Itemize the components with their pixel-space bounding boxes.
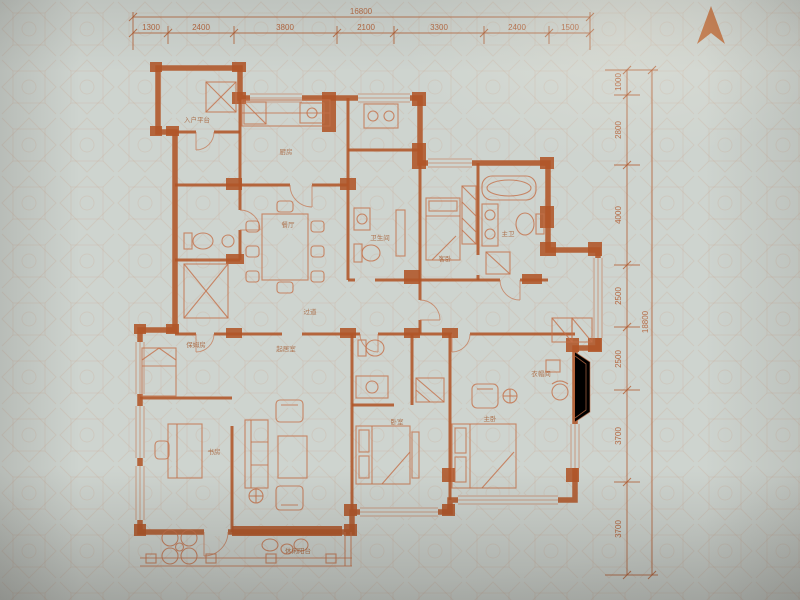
dim-seg: 1300 (142, 23, 160, 32)
room-label-closet: 衣帽间 (531, 369, 551, 378)
window (593, 258, 603, 338)
dim-seg: 2800 (614, 121, 623, 139)
room-label-study: 书房 (208, 447, 221, 456)
dim-seg: 1000 (614, 73, 623, 91)
dim-seg: 2500 (614, 350, 623, 368)
dim-seg: 4000 (614, 206, 623, 224)
room-label-guest-bath: 卫生间 (370, 233, 390, 242)
room-label-guest-bed: 客卧 (439, 254, 453, 263)
balcony-door-gap (204, 528, 228, 536)
room-label-dining: 餐厅 (282, 220, 296, 229)
floor-plan-photo: 16800 1300 2400 3800 2100 3300 2400 1500… (0, 0, 800, 600)
dim-seg: 3300 (430, 23, 448, 32)
room-label-bedroom: 卧室 (391, 417, 405, 426)
window (458, 495, 558, 505)
dim-seg: 3700 (614, 427, 623, 445)
window (570, 424, 580, 468)
room-label-kitchen: 厨房 (280, 147, 293, 156)
room-label-entry: 入户平台 (184, 115, 210, 124)
dim-seg: 3800 (276, 23, 294, 32)
dim-seg: 3700 (614, 520, 623, 538)
floor-plan-drawing: 16800 1300 2400 3800 2100 3300 2400 1500… (0, 0, 800, 600)
window (135, 342, 145, 394)
dim-seg: 2400 (192, 23, 210, 32)
bay-window (575, 352, 590, 422)
dim-total-top: 16800 (350, 7, 373, 16)
window (135, 406, 145, 458)
window (358, 93, 410, 103)
window (360, 507, 438, 517)
window (135, 466, 145, 520)
room-label-hall: 过道 (304, 307, 318, 316)
floor-lamp-icon (249, 489, 263, 503)
floor-lamp-icon (503, 389, 517, 403)
room-label-master: 主卧 (484, 414, 498, 423)
room-label-balcony: 休闲阳台 (285, 546, 311, 555)
dim-seg: 2100 (357, 23, 375, 32)
dim-seg: 2400 (508, 23, 526, 32)
room-label-family: 起居室 (276, 344, 296, 353)
dim-total-right: 18800 (641, 310, 650, 333)
dim-seg: 1500 (561, 23, 579, 32)
room-label-maid: 保姆房 (186, 340, 206, 349)
room-label-master-bath: 主卫 (502, 229, 516, 238)
dim-seg: 2500 (614, 287, 623, 305)
window (428, 158, 472, 168)
